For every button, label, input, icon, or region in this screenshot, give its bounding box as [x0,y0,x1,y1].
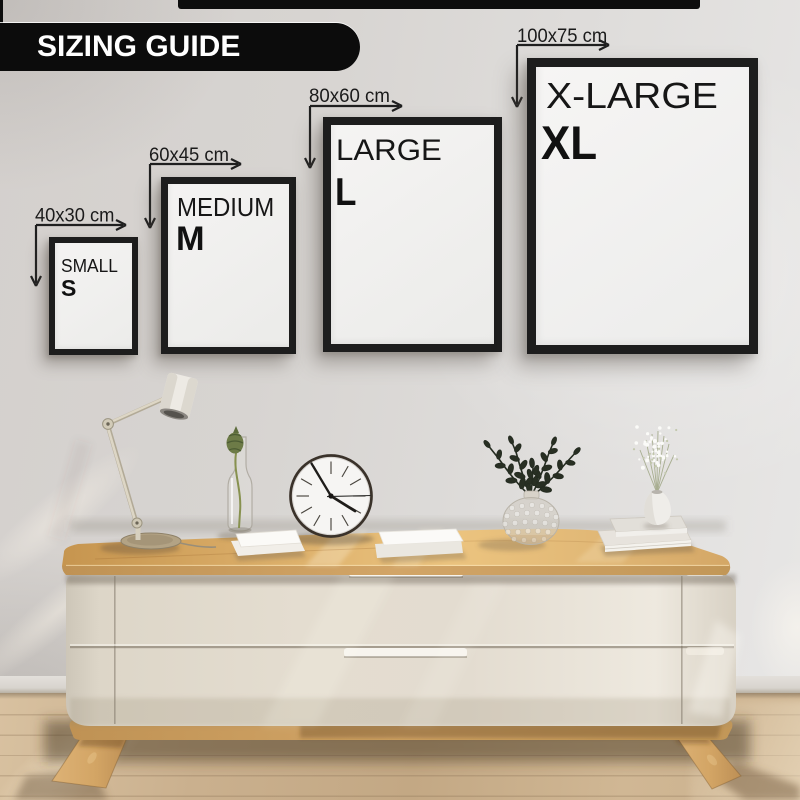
svg-text:80x60 cm: 80x60 cm [309,86,390,108]
svg-text:40x30 cm: 40x30 cm [35,205,114,227]
svg-text:100x75 cm: 100x75 cm [517,25,607,47]
svg-text:60x45 cm: 60x45 cm [149,144,229,166]
